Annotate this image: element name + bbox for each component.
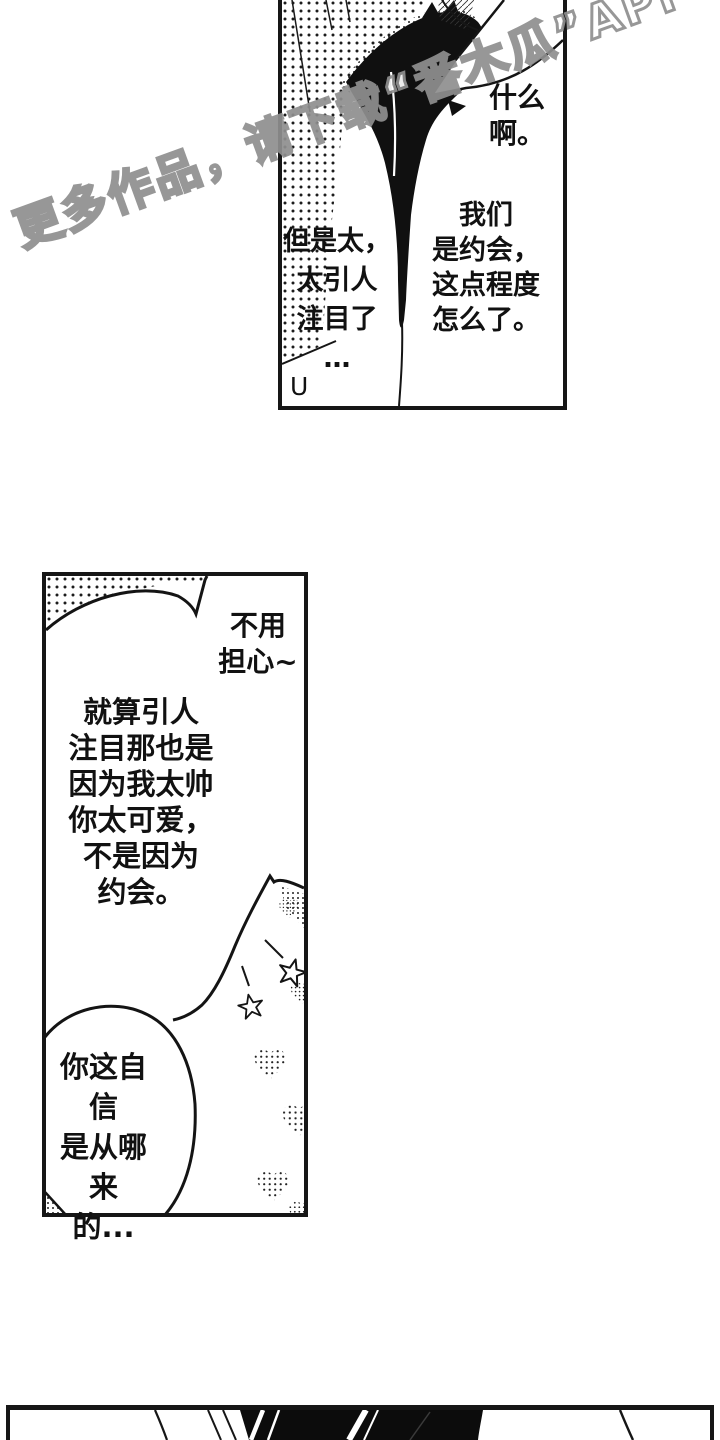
speech-text-oval: 你这自信 是从哪来 的... (46, 1047, 161, 1247)
speech-text-main: 就算引人 注目那也是 因为我太帅 你太可爱， 不是因为 约会。 (66, 694, 216, 910)
heart-decoration (255, 899, 304, 1213)
speech-text-top-right: 不用 担心~ (208, 608, 308, 680)
sparkle-lines (242, 940, 283, 986)
hair-strand-line (399, 322, 402, 406)
panel3-art (10, 1410, 710, 1440)
manga-panel-2: 不用 担心~ 就算引人 注目那也是 因为我太帅 你太可爱， 不是因为 约会。 你… (42, 572, 308, 1217)
hair-hatch-lines (208, 1410, 236, 1440)
speech-text-right-main: 我们 是约会， 这点程度 怎么了。 (420, 198, 552, 338)
manga-panel-3 (6, 1405, 714, 1440)
speech-text-left: 但是太， 太引人 注目了 … (282, 222, 392, 378)
sound-mark: U (290, 372, 308, 401)
manga-page: 什么 啊。 我们 是约会， 这点程度 怎么了。 但是太， 太引人 注目了 … U (0, 0, 720, 1440)
figure-line-left (155, 1410, 167, 1440)
speech-text-right-top: 什么 啊。 (452, 80, 582, 152)
figure-line-right (620, 1410, 633, 1440)
manga-panel-1: 什么 啊。 我们 是约会， 这点程度 怎么了。 但是太， 太引人 注目了 … U (278, 0, 567, 410)
